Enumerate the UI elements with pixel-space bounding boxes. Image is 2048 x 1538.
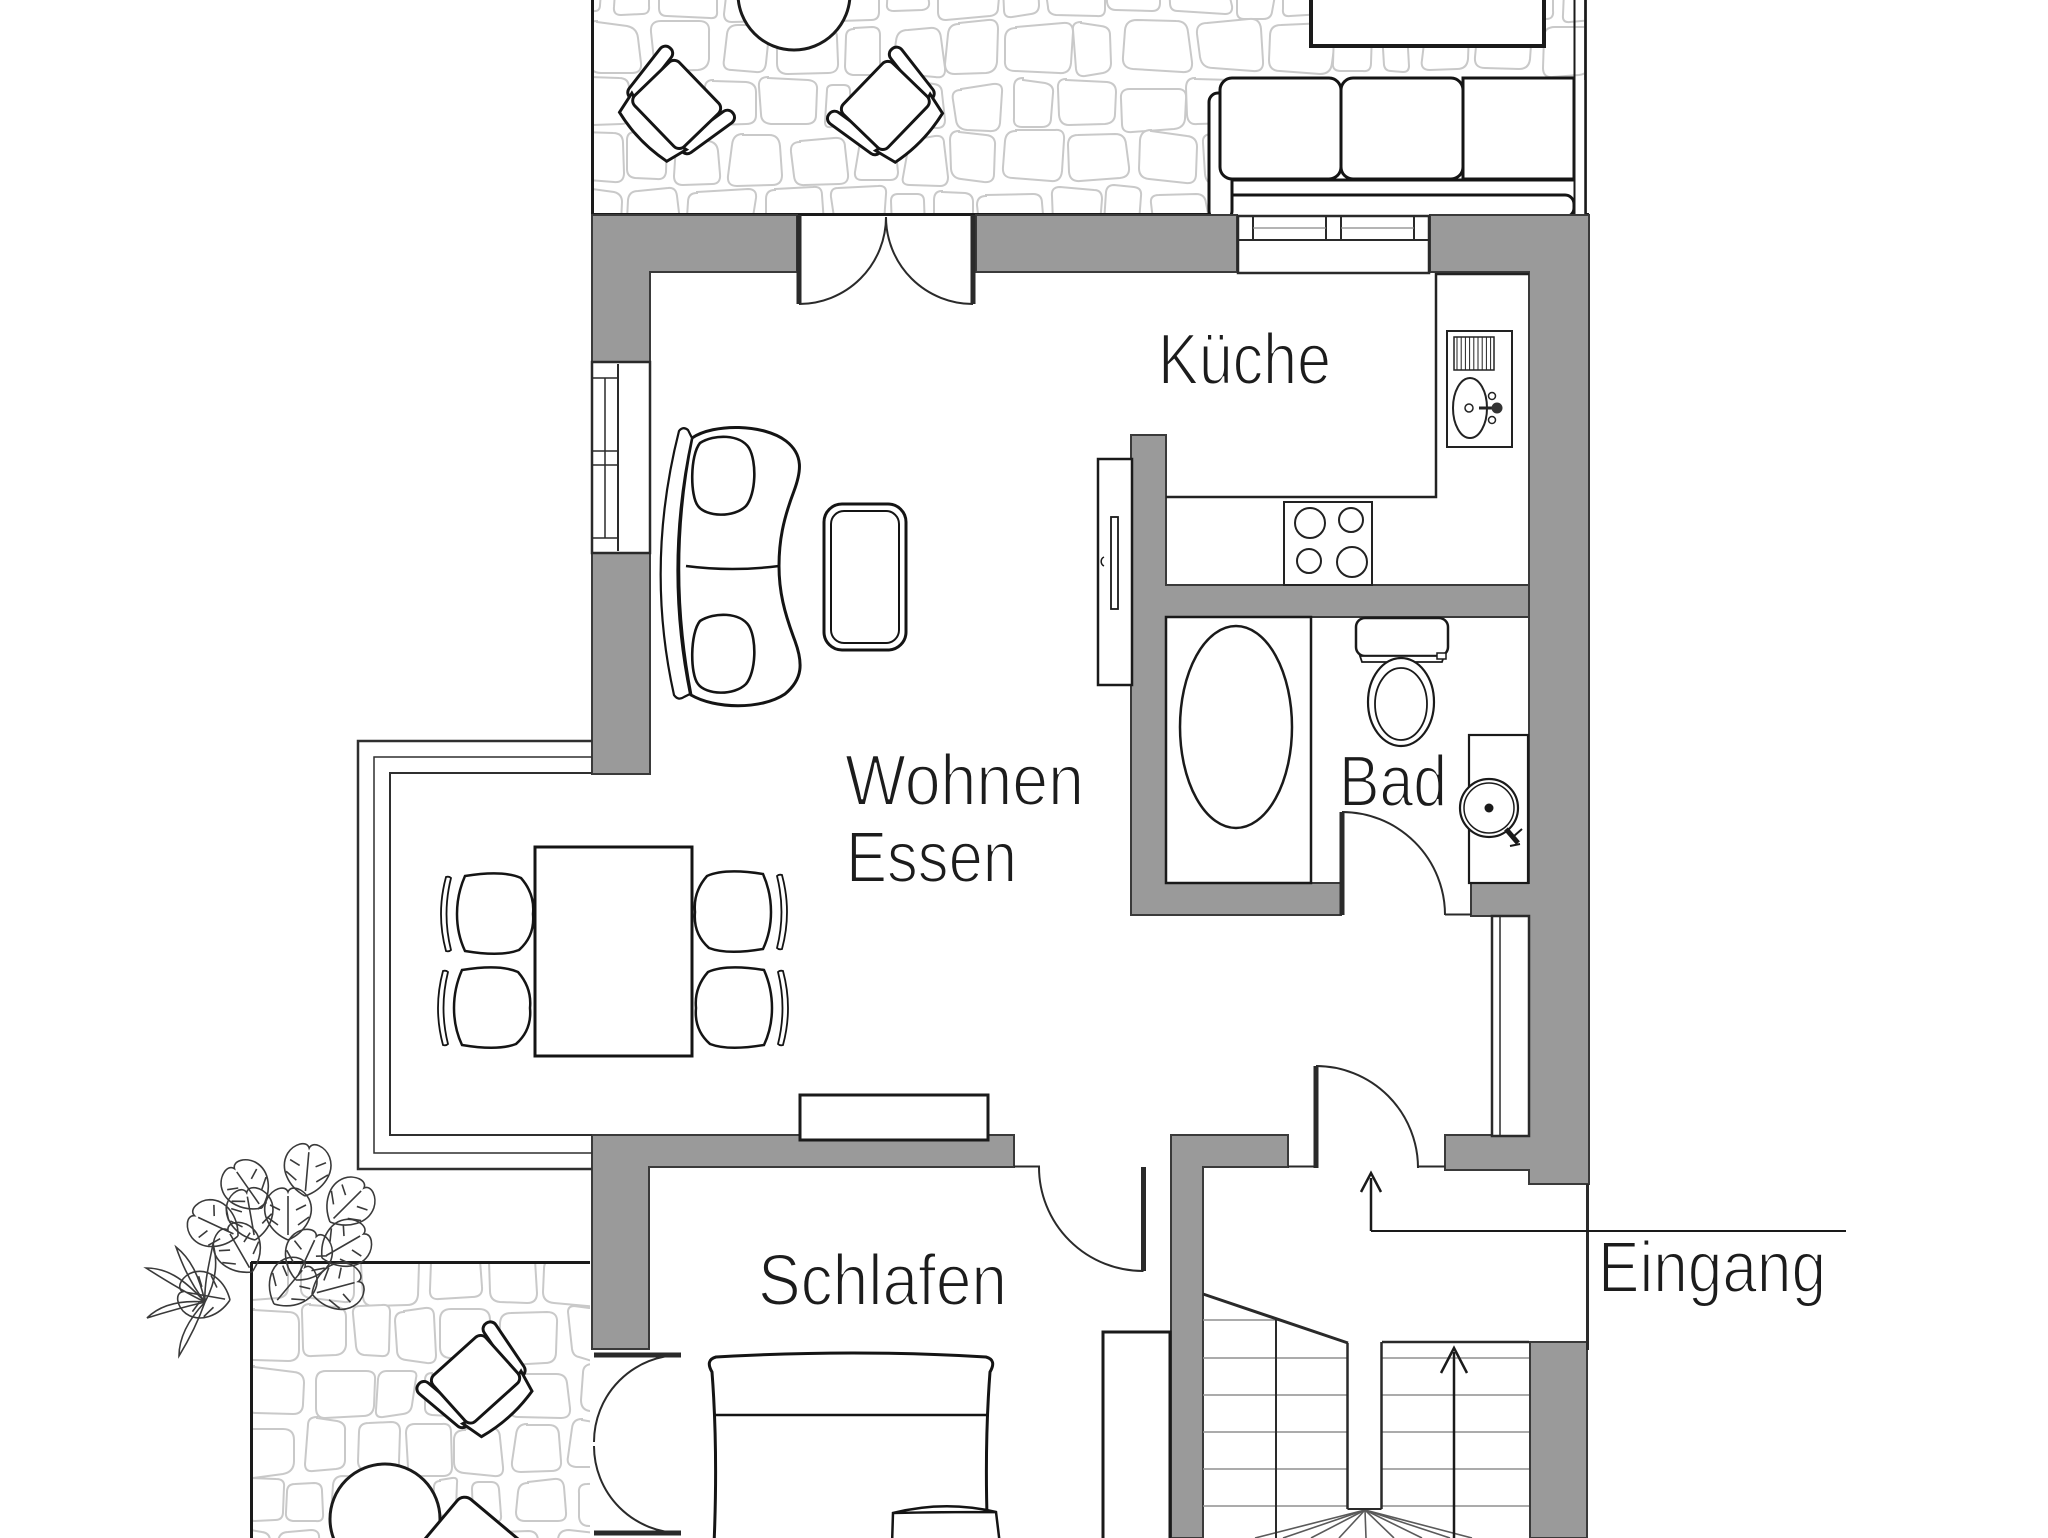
svg-text:Bad: Bad: [1339, 742, 1447, 822]
svg-text:Küche: Küche: [1158, 320, 1331, 400]
svg-text:Wohnen: Wohnen: [845, 741, 1084, 821]
svg-text:Eingang: Eingang: [1598, 1228, 1826, 1308]
svg-text:Essen: Essen: [846, 818, 1017, 898]
svg-text:Schlafen: Schlafen: [758, 1241, 1007, 1321]
